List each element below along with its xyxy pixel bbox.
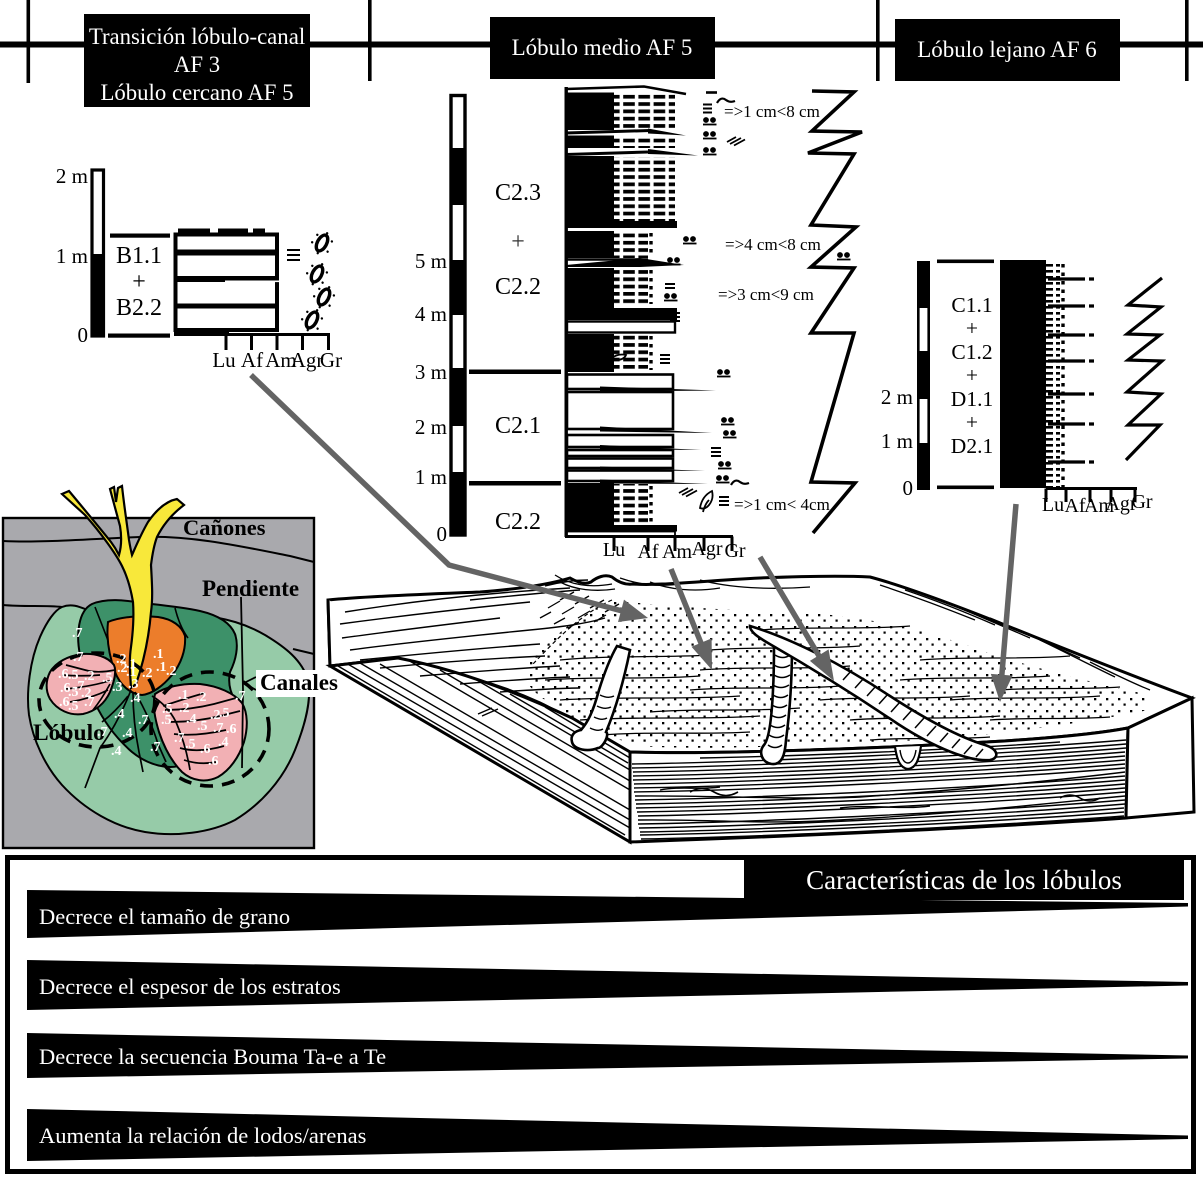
svg-text:Lu: Lu <box>212 348 236 372</box>
svg-text:.7: .7 <box>73 650 84 665</box>
svg-text:1 m: 1 m <box>881 429 913 453</box>
svg-text:.5: .5 <box>68 699 79 714</box>
svg-text:Lu: Lu <box>1042 494 1064 516</box>
svg-text:.5: .5 <box>219 706 230 721</box>
svg-text:3 m: 3 m <box>415 360 447 384</box>
svg-text:1 m: 1 m <box>56 244 88 268</box>
svg-text:.5: .5 <box>102 671 113 686</box>
svg-text:=>4 cm<8 cm: =>4 cm<8 cm <box>725 235 821 254</box>
svg-text:2 m: 2 m <box>881 385 913 409</box>
svg-text:Pendiente: Pendiente <box>202 576 299 601</box>
svg-text:0: 0 <box>903 476 914 500</box>
svg-text:Af: Af <box>1064 495 1085 517</box>
svg-text:+: + <box>966 316 978 340</box>
svg-text:Gr: Gr <box>1131 491 1152 513</box>
svg-text:Decrece el tamaño de grano: Decrece el tamaño de grano <box>39 904 290 929</box>
svg-text:.5: .5 <box>68 685 79 700</box>
svg-text:Lu: Lu <box>603 539 625 561</box>
svg-text:Cañones: Cañones <box>183 515 266 540</box>
svg-text:AF 3: AF 3 <box>174 52 220 77</box>
svg-text:Canales: Canales <box>260 670 338 695</box>
svg-text:=>3 cm<9 cm: =>3 cm<9 cm <box>718 285 814 304</box>
svg-text:0: 0 <box>437 522 448 546</box>
svg-text:Lóbulo medio AF 5: Lóbulo medio AF 5 <box>512 35 693 60</box>
svg-text:.5: .5 <box>197 719 208 734</box>
svg-text:Gr: Gr <box>320 348 342 372</box>
svg-text:.7: .7 <box>174 731 185 746</box>
svg-text:Agr: Agr <box>691 538 722 560</box>
svg-text:.1: .1 <box>156 660 167 675</box>
svg-text:Características de los lóbulos: Características de los lóbulos <box>806 865 1122 895</box>
svg-text:.3: .3 <box>128 677 139 692</box>
svg-text:Transición lóbulo-canal: Transición lóbulo-canal <box>89 24 305 49</box>
svg-text:.7: .7 <box>235 689 246 704</box>
svg-text:.4: .4 <box>122 726 133 741</box>
svg-text:.6: .6 <box>58 667 69 682</box>
svg-text:.5: .5 <box>185 737 196 752</box>
svg-text:2 m: 2 m <box>56 164 88 188</box>
svg-text:.4: .4 <box>111 744 122 759</box>
svg-text:C2.2: C2.2 <box>495 509 541 535</box>
svg-text:4 m: 4 m <box>415 302 447 326</box>
svg-text:.2: .2 <box>142 666 153 681</box>
svg-text:+: + <box>966 410 978 434</box>
svg-text:.7: .7 <box>213 721 224 736</box>
svg-text:Lóbulo cercano AF 5: Lóbulo cercano AF 5 <box>100 80 293 105</box>
svg-text:.4: .4 <box>218 735 229 750</box>
svg-text:5 m: 5 m <box>415 249 447 273</box>
svg-text:Af: Af <box>241 348 263 372</box>
svg-text:C2.3: C2.3 <box>495 180 541 206</box>
svg-text:B1.1: B1.1 <box>116 243 162 269</box>
svg-text:Decrece la secuencia Bouma Ta-: Decrece la secuencia Bouma Ta-e a Te <box>39 1044 386 1069</box>
svg-text:.2: .2 <box>196 690 207 705</box>
svg-text:Lóbulo lejano AF 6: Lóbulo lejano AF 6 <box>917 37 1097 62</box>
svg-text:+: + <box>511 229 525 255</box>
svg-text:B2.2: B2.2 <box>116 295 162 321</box>
svg-text:=>1 cm<8 cm: =>1 cm<8 cm <box>724 102 820 121</box>
svg-text:.2: .2 <box>84 669 95 684</box>
svg-text:Af: Af <box>637 541 658 563</box>
svg-text:D2.1: D2.1 <box>951 434 993 458</box>
svg-text:C2.2: C2.2 <box>495 274 541 300</box>
svg-text:.7: .7 <box>97 725 108 740</box>
svg-text:.4: .4 <box>186 712 197 727</box>
svg-text:.4: .4 <box>114 707 125 722</box>
svg-text:C1.2: C1.2 <box>951 340 992 364</box>
svg-text:D1.1: D1.1 <box>951 387 993 411</box>
svg-text:.4: .4 <box>130 691 141 706</box>
svg-text:0: 0 <box>78 323 89 347</box>
svg-text:Gr: Gr <box>724 540 745 562</box>
svg-text:=>1 cm< 4cm: =>1 cm< 4cm <box>734 495 830 514</box>
svg-text:+: + <box>132 269 146 295</box>
svg-text:C2.1: C2.1 <box>495 413 541 439</box>
svg-text:Aumenta la relación de lodos/a: Aumenta la relación de lodos/arenas <box>39 1123 366 1148</box>
svg-text:Lóbulo: Lóbulo <box>33 720 105 746</box>
svg-text:.7: .7 <box>150 740 161 755</box>
svg-text:2 m: 2 m <box>415 415 447 439</box>
svg-text:.5: .5 <box>161 713 172 728</box>
svg-text:Am: Am <box>662 541 692 563</box>
svg-text:.6: .6 <box>208 754 219 769</box>
svg-text:Decrece el espesor de los estr: Decrece el espesor de los estratos <box>39 974 341 999</box>
svg-text:C1.1: C1.1 <box>951 293 992 317</box>
svg-text:.7: .7 <box>84 695 95 710</box>
svg-text:.2: .2 <box>166 664 177 679</box>
svg-text:.7: .7 <box>138 713 149 728</box>
svg-text:1 m: 1 m <box>415 465 447 489</box>
svg-text:.3: .3 <box>112 680 123 695</box>
svg-text:+: + <box>966 363 978 387</box>
svg-text:Agr: Agr <box>291 348 324 372</box>
svg-text:.7: .7 <box>72 626 83 641</box>
